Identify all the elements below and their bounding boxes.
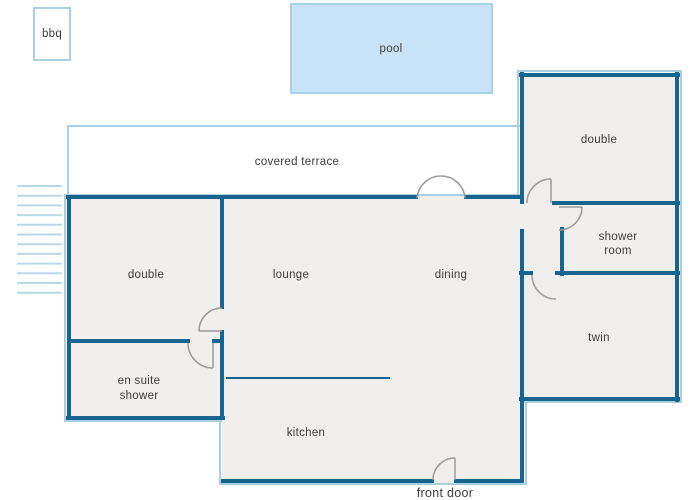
label-pool: pool — [380, 43, 403, 55]
label-covered-terrace: covered terrace — [255, 156, 339, 168]
label-twin: twin — [588, 332, 610, 344]
label-shower-room-line1: shower — [599, 231, 638, 243]
center-block-floor — [222, 196, 524, 483]
steps — [17, 186, 62, 293]
label-ensuite-line1: en suite — [118, 375, 161, 387]
label-front-door: front door — [417, 486, 474, 500]
label-lounge: lounge — [273, 269, 309, 281]
floor-plan: bbq pool covered terrace double shower r… — [0, 0, 700, 500]
label-double-top: double — [581, 134, 617, 146]
label-kitchen: kitchen — [287, 427, 326, 439]
label-double-left: double — [128, 269, 164, 281]
label-shower-room-line2: room — [604, 245, 631, 257]
label-dining: dining — [435, 269, 468, 281]
label-bbq: bbq — [42, 28, 62, 40]
floor-plan-canvas: bbq pool covered terrace double shower r… — [0, 0, 700, 500]
label-ensuite-line2: shower — [120, 390, 159, 402]
